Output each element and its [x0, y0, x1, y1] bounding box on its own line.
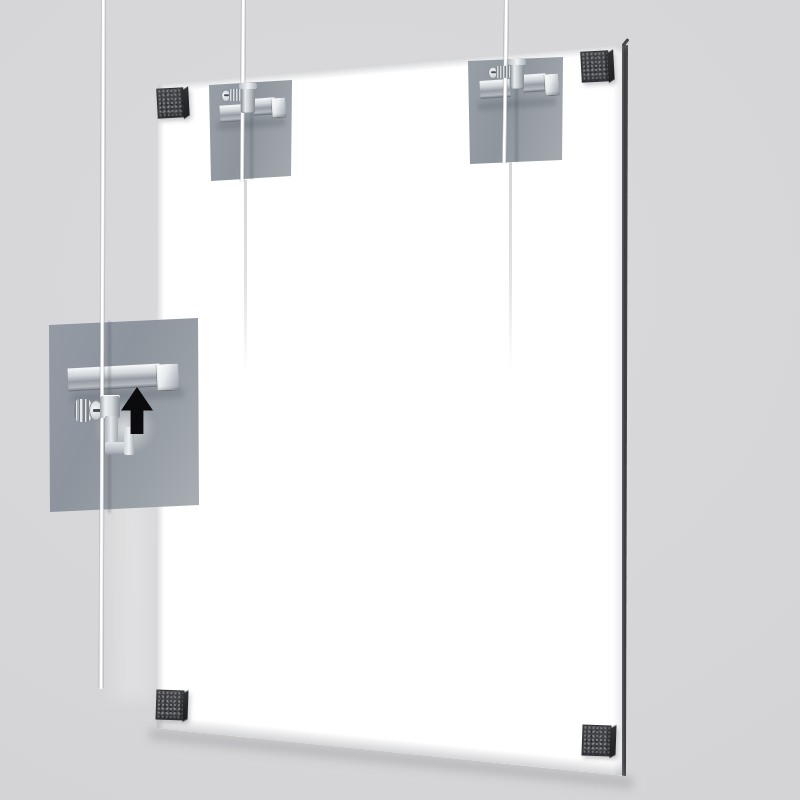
gripper-body — [100, 395, 120, 418]
cable-gripper-block — [241, 83, 255, 113]
corner-grip-front — [156, 87, 185, 118]
detail-callout-gripper — [46, 315, 204, 515]
corner-grip-bottom-left — [155, 690, 184, 721]
gripper-rail-endcap — [270, 98, 286, 119]
corner-grip-top-right — [580, 50, 610, 82]
corner-grip-bottom-right — [581, 725, 611, 757]
gripper-rail-endcap — [155, 363, 179, 391]
cable-mount-top-left — [205, 76, 297, 182]
gripper-rail — [67, 364, 160, 392]
suspension-cable-right-tail — [509, 162, 512, 368]
corner-grip-front — [580, 50, 610, 82]
scene — [0, 0, 800, 800]
gripper-rail-endcap — [543, 74, 559, 97]
cable-mount-top-right — [464, 50, 566, 168]
corner-grip-front — [581, 725, 611, 757]
cable-gripper-block — [510, 59, 524, 89]
thumbscrew-icon — [74, 399, 103, 422]
corner-grip-top-left — [156, 87, 185, 118]
suspension-cable-middle-tail — [244, 180, 247, 372]
gripper-stem — [105, 416, 118, 444]
corner-grip-front — [155, 690, 184, 721]
corner-grip-side — [609, 725, 616, 758]
wall-light-reflection — [100, 495, 162, 700]
thumbscrew-icon — [488, 65, 512, 80]
